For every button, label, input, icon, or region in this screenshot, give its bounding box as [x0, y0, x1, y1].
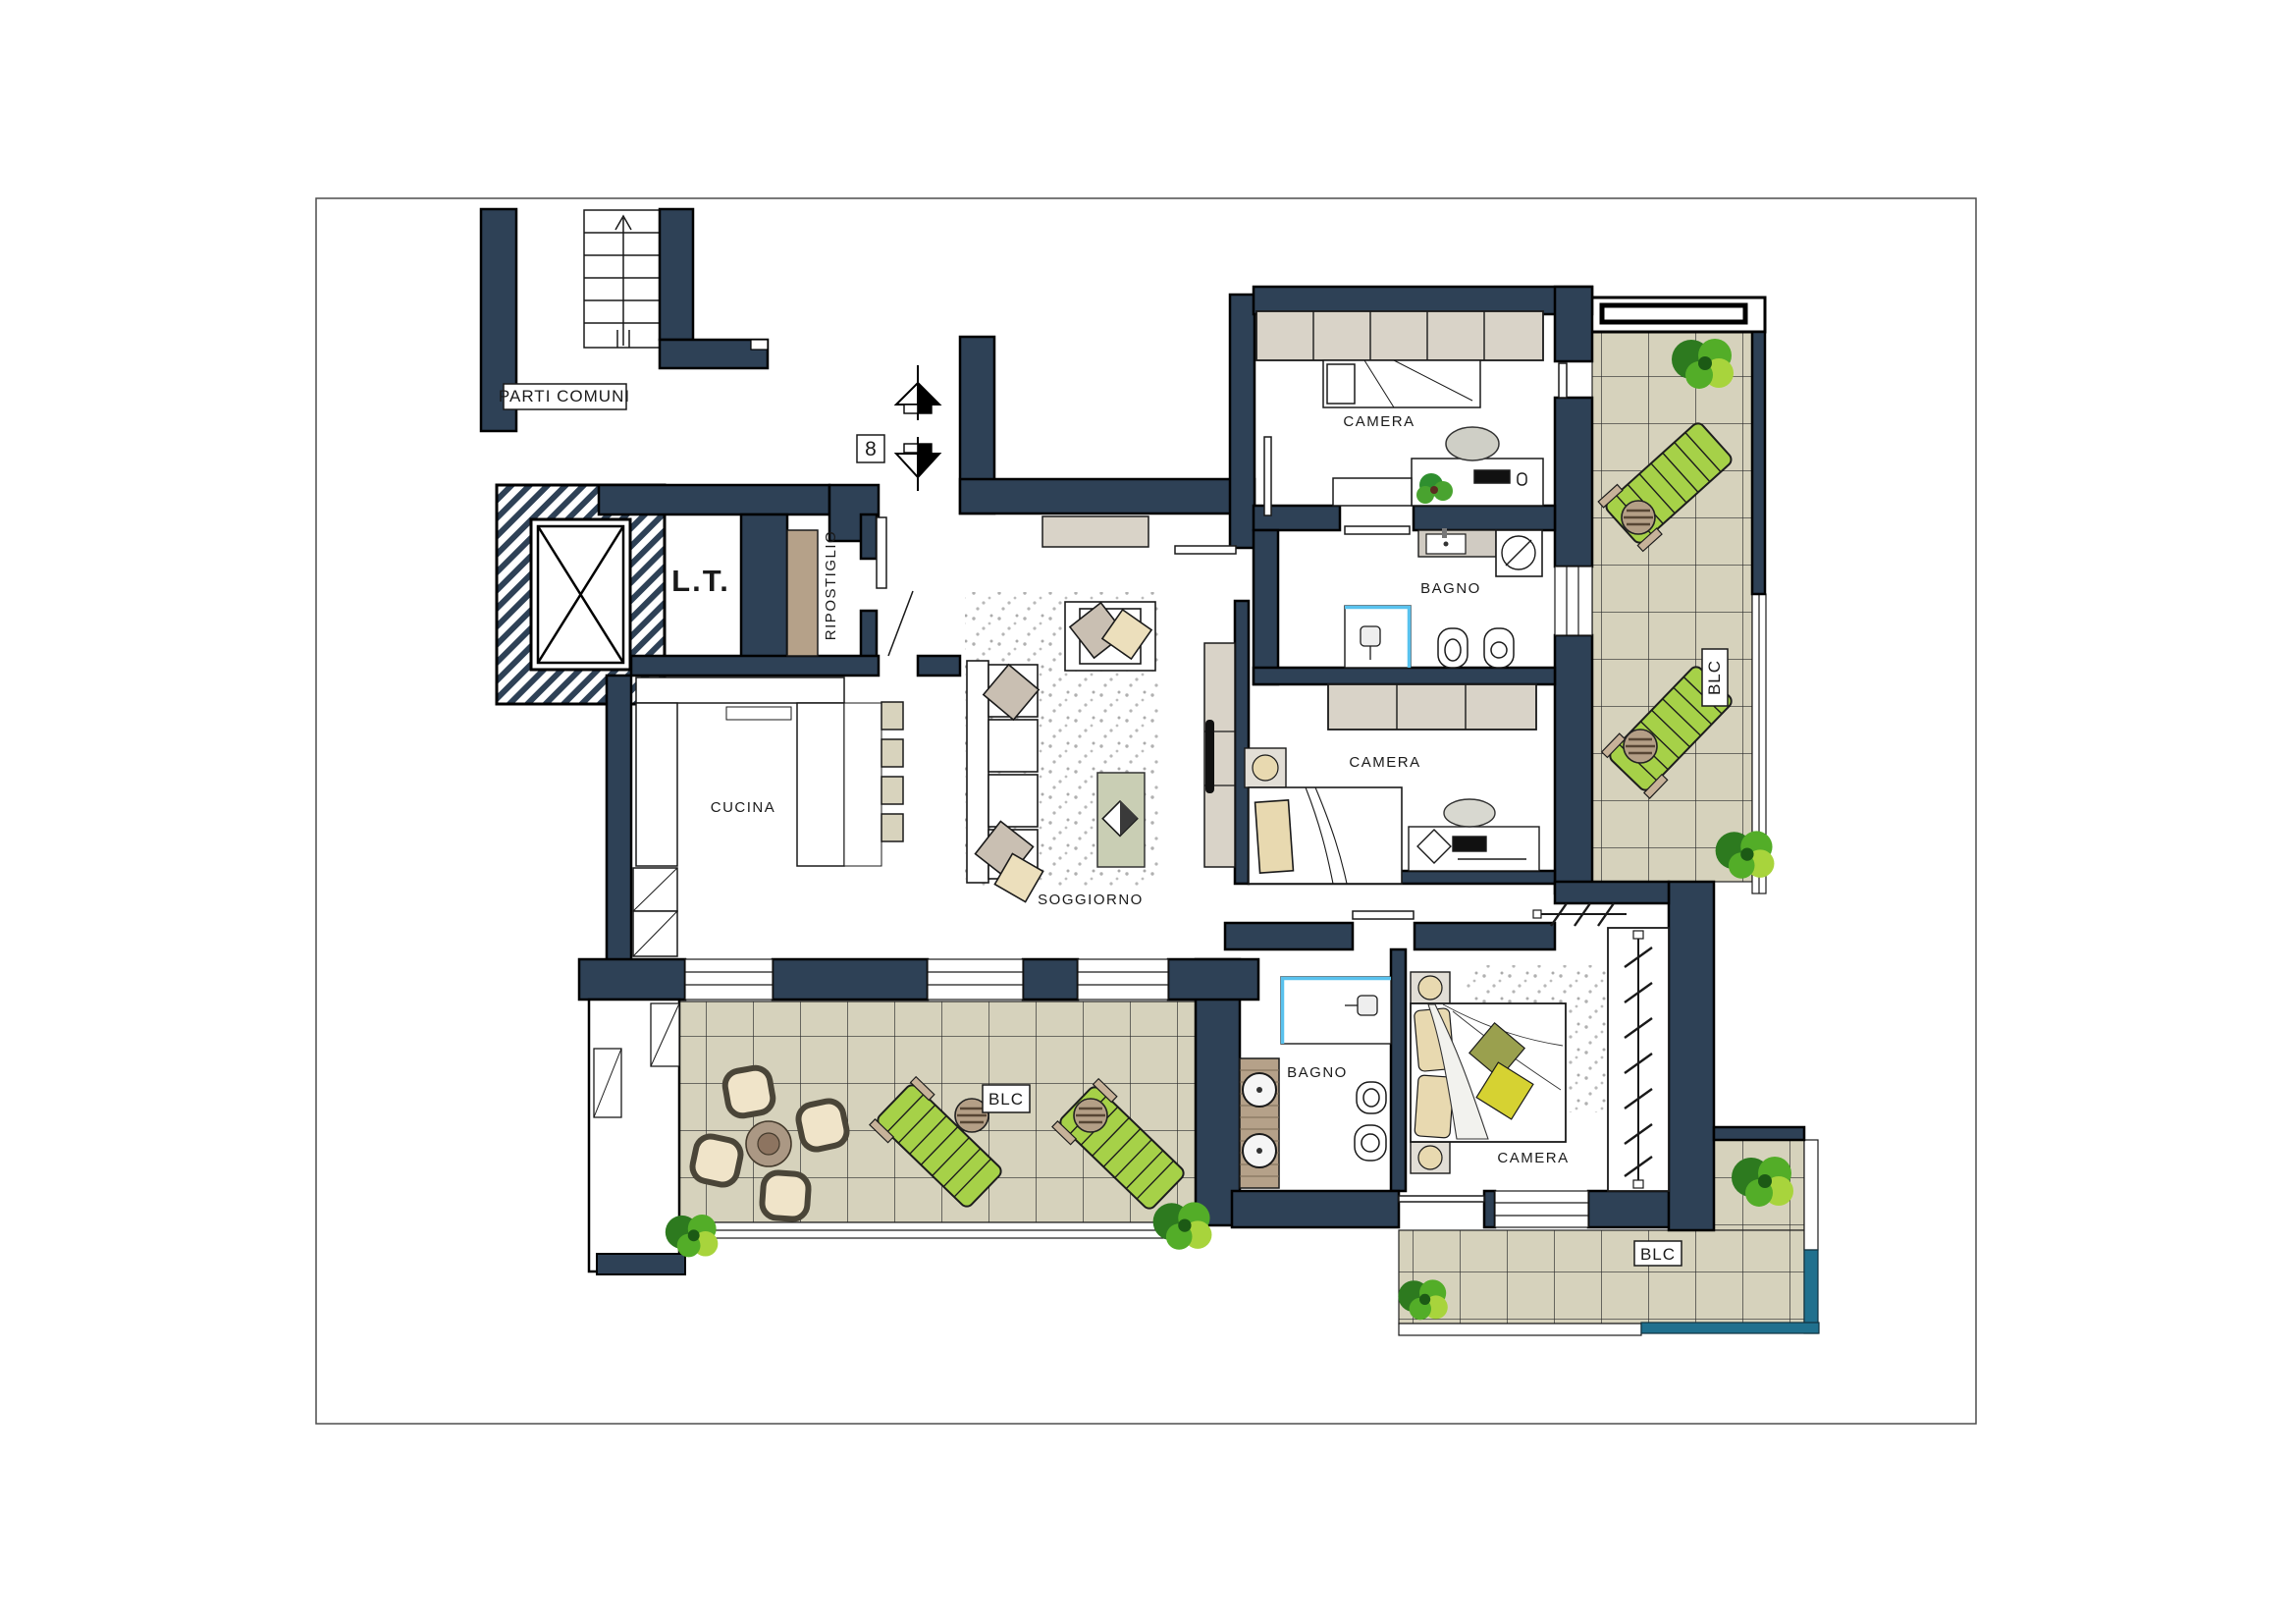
- sideboard: [1042, 516, 1148, 547]
- washing-machine-icon: [1496, 530, 1542, 576]
- wardrobe: [1256, 311, 1543, 360]
- toilet-icon: [1484, 628, 1514, 668]
- wall-segment: [1415, 923, 1555, 949]
- camera-middle-text: CAMERA: [1349, 754, 1420, 771]
- wall-segment: [1232, 1191, 1399, 1227]
- ripostiglio-text: RIPOSTIGLIO: [823, 530, 839, 640]
- pillow: [1327, 364, 1355, 404]
- wall-segment: [1414, 506, 1555, 530]
- wall-segment: [1555, 882, 1669, 903]
- wall-segment: [607, 676, 631, 968]
- parti-comuni-text: PARTI COMUNI: [499, 387, 630, 406]
- tv-unit: [1204, 643, 1235, 867]
- faucet-icon: [1442, 528, 1447, 538]
- laptop-icon: [1453, 837, 1486, 851]
- bagno-top-text: BAGNO: [1420, 580, 1481, 597]
- bar-stool: [881, 739, 903, 767]
- shower-icon: [1281, 977, 1391, 1044]
- outdoor-chair: [690, 1134, 744, 1188]
- cucina-text: CUCINA: [711, 799, 776, 816]
- balcony-right-floor: [1592, 332, 1752, 882]
- lt-room-text: L.T.: [671, 564, 730, 598]
- lamp-icon: [1418, 1146, 1442, 1169]
- bagno-lower-text: BAGNO: [1287, 1064, 1348, 1081]
- wall-segment: [1714, 1127, 1804, 1140]
- storage-wardrobe: [787, 530, 818, 656]
- monitor-icon: [1474, 470, 1510, 483]
- camera-master-text: CAMERA: [1497, 1150, 1569, 1166]
- wall-segment: [660, 209, 693, 340]
- office-chair-icon: [1446, 427, 1499, 460]
- wall-segment: [1254, 530, 1278, 684]
- bed-icon: [1323, 360, 1480, 407]
- wall-segment: [1555, 398, 1592, 567]
- wall-notch: [751, 340, 768, 350]
- soggiorno-text: SOGGIORNO: [1038, 892, 1144, 908]
- outdoor-chair: [761, 1171, 809, 1219]
- bar-stool: [881, 777, 903, 804]
- wall-segment: [1391, 949, 1406, 1191]
- window: [1078, 959, 1168, 1000]
- door-leaf: [877, 517, 886, 588]
- wall-segment: [1168, 959, 1258, 1000]
- coffee-table: [1097, 773, 1145, 867]
- wall-segment: [861, 611, 877, 658]
- wall-segment: [918, 656, 960, 676]
- bar-stool: [881, 702, 903, 730]
- wall-segment: [1225, 923, 1353, 949]
- kitchen-counter: [797, 703, 844, 866]
- door-leaf: [1345, 526, 1410, 534]
- wall-segment: [579, 959, 685, 1000]
- window: [685, 959, 773, 1000]
- pillow: [1255, 800, 1294, 873]
- window: [928, 959, 1023, 1000]
- label-blc-bottom-right: BLC: [1634, 1241, 1682, 1266]
- wall-segment: [599, 485, 829, 514]
- wall-segment: [1235, 601, 1249, 884]
- outdoor-chair: [796, 1099, 850, 1153]
- wall-segment: [1254, 668, 1555, 684]
- window: [1495, 1191, 1588, 1227]
- wardrobe: [1328, 684, 1536, 730]
- armchair-icon: [1065, 602, 1155, 671]
- wall-segment: [1555, 635, 1592, 893]
- pergola: [1582, 298, 1765, 332]
- wall-segment: [1555, 287, 1592, 361]
- unit-number-text: 8: [865, 438, 877, 460]
- wall-segment: [1230, 295, 1255, 548]
- railing: [1804, 1140, 1818, 1250]
- floor-plan-page: PARTI COMUNI 8 L.T. RIPOSTIGLIO CUCINA S…: [0, 0, 2296, 1623]
- wall-segment: [1588, 1191, 1679, 1227]
- mouse-icon: [1518, 473, 1526, 485]
- wall-segment: [861, 514, 877, 559]
- sink-counter-wood: [1240, 1058, 1279, 1188]
- door-leaf: [1264, 437, 1271, 515]
- wall-segment: [631, 656, 879, 676]
- wall-segment: [1023, 959, 1078, 1000]
- side-table-icon: [1624, 730, 1657, 763]
- bidet-icon: [1357, 1082, 1386, 1113]
- staircase-icon: [584, 210, 663, 348]
- label-unit-number: 8: [857, 435, 884, 462]
- blc-bottom-left-text: BLC: [988, 1090, 1024, 1109]
- tv-icon: [1205, 720, 1214, 793]
- shower-icon: [1345, 606, 1411, 668]
- camera-top-text: CAMERA: [1343, 413, 1415, 430]
- window: [1555, 567, 1592, 635]
- wall-segment: [1752, 332, 1765, 594]
- kitchen-counter: [636, 703, 677, 866]
- bar-stool: [881, 814, 903, 841]
- office-chair-icon: [1444, 799, 1495, 827]
- side-table-icon: [1622, 501, 1655, 534]
- wall-segment: [960, 479, 1255, 514]
- railing-teal: [1641, 1323, 1819, 1333]
- kitchen-bar: [844, 703, 881, 866]
- bidet-icon: [1438, 628, 1468, 668]
- floor-plan-svg: PARTI COMUNI 8 L.T. RIPOSTIGLIO CUCINA S…: [0, 0, 2296, 1623]
- label-blc-right: BLC: [1702, 649, 1728, 706]
- blc-bottom-right-text: BLC: [1640, 1245, 1676, 1264]
- label-blc-bottom-left: BLC: [983, 1085, 1030, 1112]
- wall-segment: [741, 514, 787, 662]
- railing: [1399, 1324, 1641, 1335]
- bed-icon: [1411, 1003, 1566, 1142]
- outdoor-chair: [722, 1065, 774, 1117]
- bed-icon: [1249, 787, 1402, 884]
- sofa-icon: [967, 661, 1043, 902]
- door-leaf: [1559, 363, 1567, 398]
- wall-segment: [1254, 287, 1592, 314]
- door-leaf: [1399, 1196, 1484, 1202]
- railing-teal: [1804, 1250, 1818, 1333]
- side-table-icon: [1074, 1099, 1107, 1132]
- door-leaf: [1175, 546, 1236, 554]
- wall-segment: [1669, 882, 1714, 1230]
- toilet-icon: [1355, 1125, 1386, 1161]
- kitchen-counter: [636, 677, 844, 703]
- lamp-icon: [1418, 976, 1442, 1000]
- wall-segment: [1484, 1191, 1495, 1227]
- blc-right-text: BLC: [1705, 660, 1724, 695]
- label-parti-comuni: PARTI COMUNI: [499, 384, 630, 409]
- wall-segment: [773, 959, 928, 1000]
- lamp-icon: [1253, 755, 1278, 781]
- door-leaf: [1353, 911, 1414, 919]
